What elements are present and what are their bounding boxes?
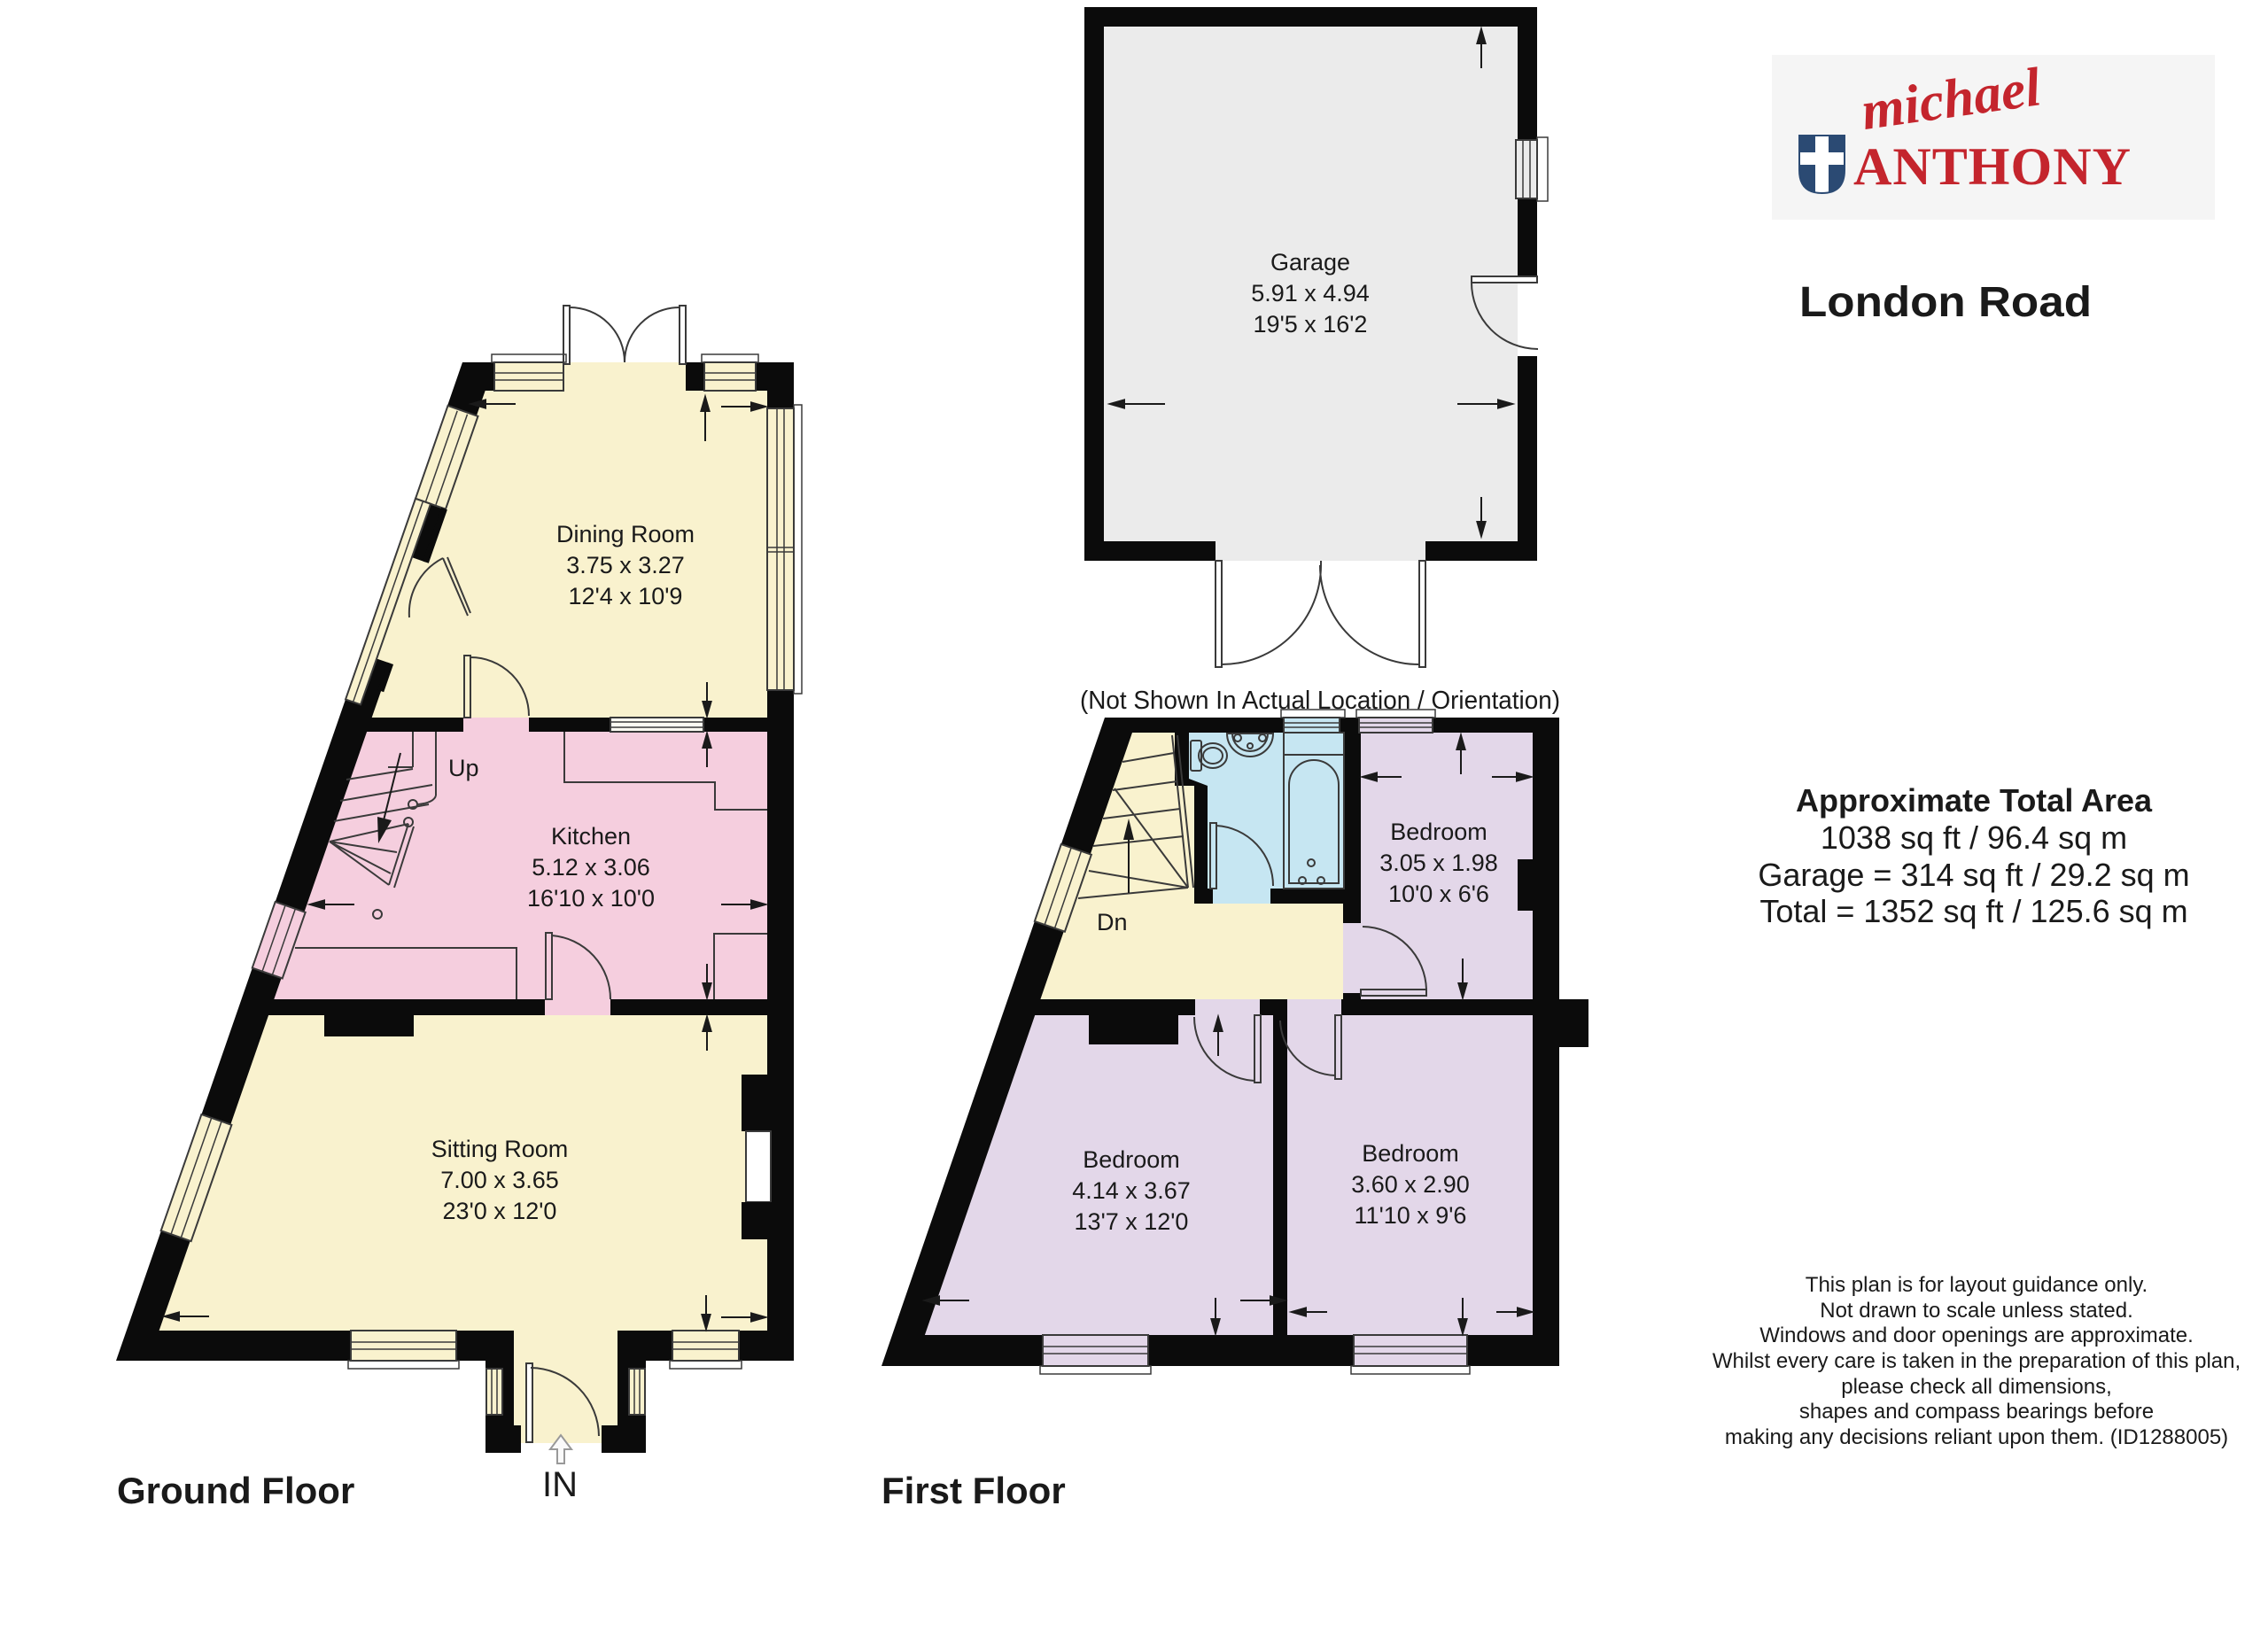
svg-text:11'10 x 9'6: 11'10 x 9'6 (1355, 1202, 1467, 1229)
svg-text:Windows and door openings are: Windows and door openings are approximat… (1759, 1323, 2194, 1347)
svg-text:5.12 x 3.06: 5.12 x 3.06 (532, 854, 650, 881)
svg-text:Sitting Room: Sitting Room (431, 1136, 569, 1162)
svg-text:Whilst every care is taken in: Whilst every care is taken in the prepar… (1713, 1349, 2241, 1373)
svg-text:shapes and compass bearings be: shapes and compass bearings before (1799, 1400, 2154, 1424)
svg-text:Bedroom: Bedroom (1083, 1146, 1180, 1173)
svg-text:7.00 x 3.65: 7.00 x 3.65 (440, 1167, 559, 1193)
svg-text:Garage: Garage (1270, 249, 1350, 276)
svg-text:5.91 x 4.94: 5.91 x 4.94 (1251, 280, 1370, 307)
svg-text:4.14 x 3.67: 4.14 x 3.67 (1072, 1177, 1191, 1204)
svg-text:3.60 x 2.90: 3.60 x 2.90 (1351, 1171, 1470, 1198)
svg-text:1038 sq ft / 96.4 sq m: 1038 sq ft / 96.4 sq m (1821, 819, 2127, 856)
svg-text:Ground Floor: Ground Floor (117, 1470, 354, 1511)
svg-text:12'4 x 10'9: 12'4 x 10'9 (569, 583, 683, 609)
svg-text:13'7 x 12'0: 13'7 x 12'0 (1075, 1208, 1189, 1235)
svg-text:London Road: London Road (1799, 279, 2092, 326)
svg-text:making any decisions reliant u: making any decisions reliant upon them. … (1725, 1425, 2228, 1449)
svg-text:Garage = 314 sq ft / 29.2 sq m: Garage = 314 sq ft / 29.2 sq m (1758, 857, 2189, 893)
svg-text:ANTHONY: ANTHONY (1853, 137, 2132, 196)
svg-text:10'0 x 6'6: 10'0 x 6'6 (1388, 881, 1489, 907)
svg-text:please check all dimensions,: please check all dimensions, (1841, 1375, 2112, 1399)
svg-text:Bedroom: Bedroom (1362, 1140, 1459, 1167)
svg-text:IN: IN (542, 1465, 578, 1504)
svg-text:3.05 x 1.98: 3.05 x 1.98 (1379, 850, 1498, 876)
svg-text:(Not Shown In Actual Location: (Not Shown In Actual Location / Orientat… (1080, 687, 1560, 715)
svg-text:Dining Room: Dining Room (556, 521, 695, 547)
svg-text:Total = 1352 sq ft / 125.6 sq: Total = 1352 sq ft / 125.6 sq m (1759, 893, 2187, 929)
svg-text:16'10 x 10'0: 16'10 x 10'0 (527, 885, 655, 912)
svg-text:Dn: Dn (1097, 909, 1128, 935)
svg-text:This plan is for layout guidan: This plan is for layout guidance only. (1806, 1273, 2148, 1297)
svg-text:First Floor: First Floor (882, 1470, 1066, 1511)
svg-text:23'0 x 12'0: 23'0 x 12'0 (443, 1198, 557, 1224)
svg-text:3.75 x 3.27: 3.75 x 3.27 (566, 552, 685, 578)
svg-text:Kitchen: Kitchen (551, 823, 631, 850)
svg-text:Not drawn to scale unless stat: Not drawn to scale unless stated. (1820, 1299, 2133, 1323)
svg-text:19'5 x 16'2: 19'5 x 16'2 (1254, 311, 1368, 338)
svg-text:Approximate Total Area: Approximate Total Area (1796, 782, 2153, 819)
svg-text:Bedroom: Bedroom (1390, 819, 1487, 845)
svg-text:Up: Up (448, 755, 479, 781)
